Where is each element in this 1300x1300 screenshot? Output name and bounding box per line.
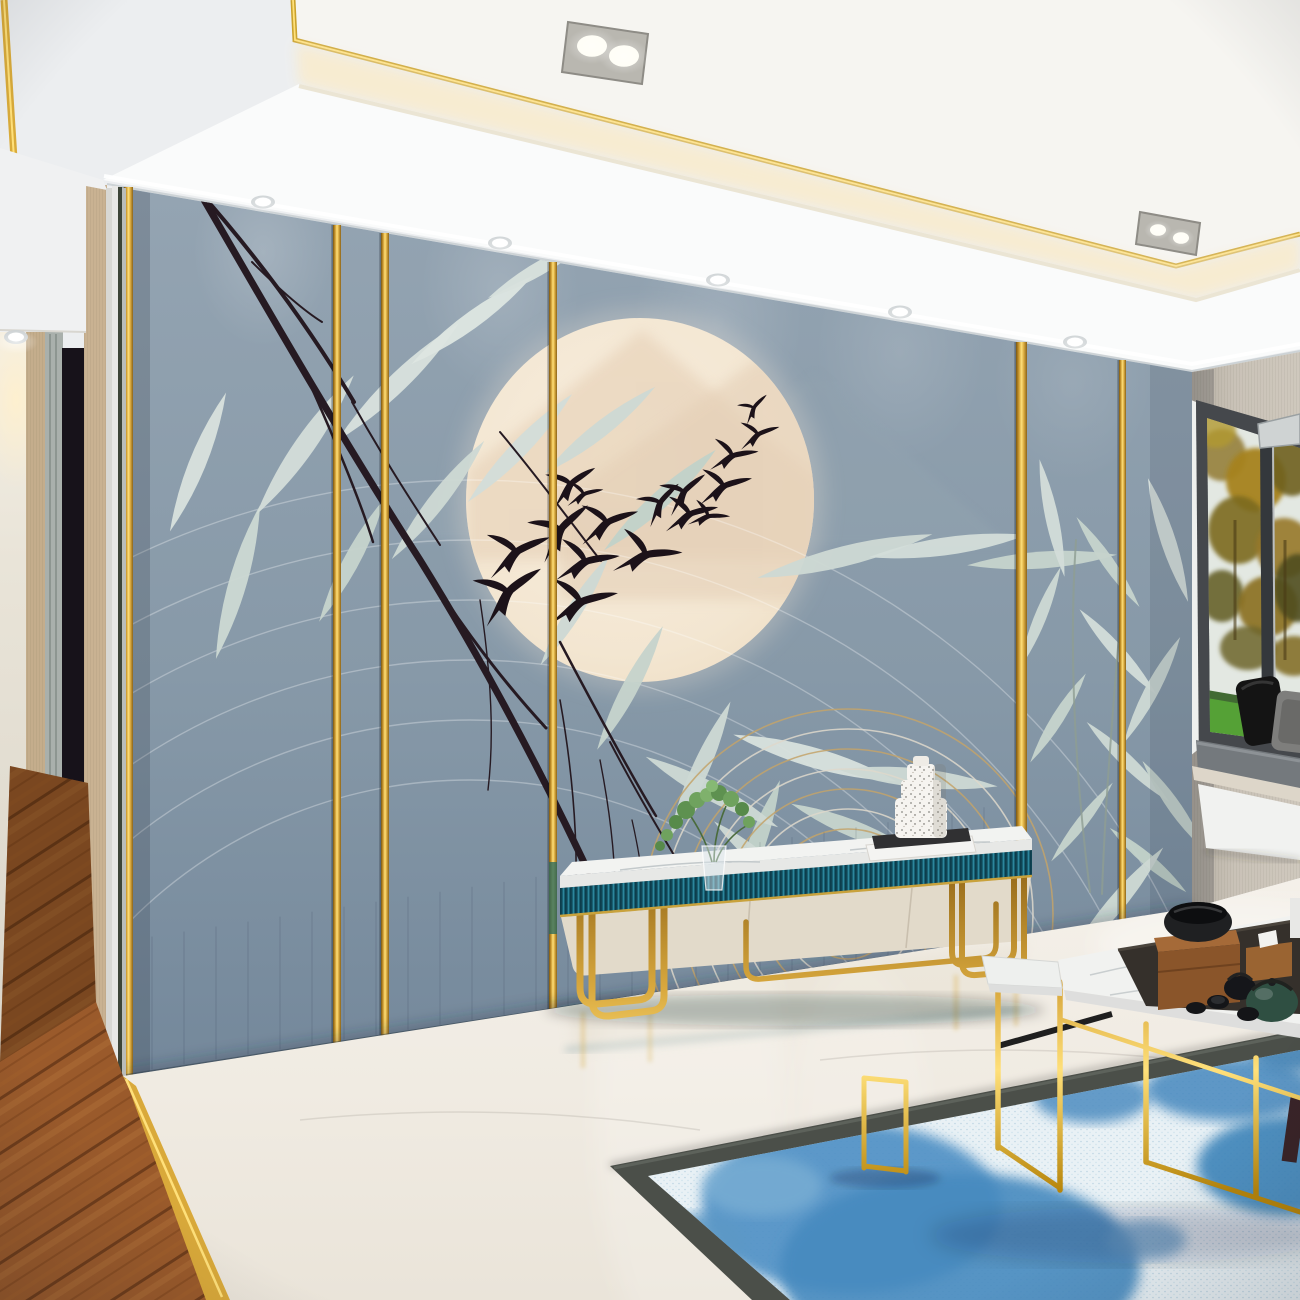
living-room-render xyxy=(0,0,1300,1300)
render-canvas xyxy=(0,0,1300,1300)
vignette-overlay xyxy=(0,0,1300,1300)
